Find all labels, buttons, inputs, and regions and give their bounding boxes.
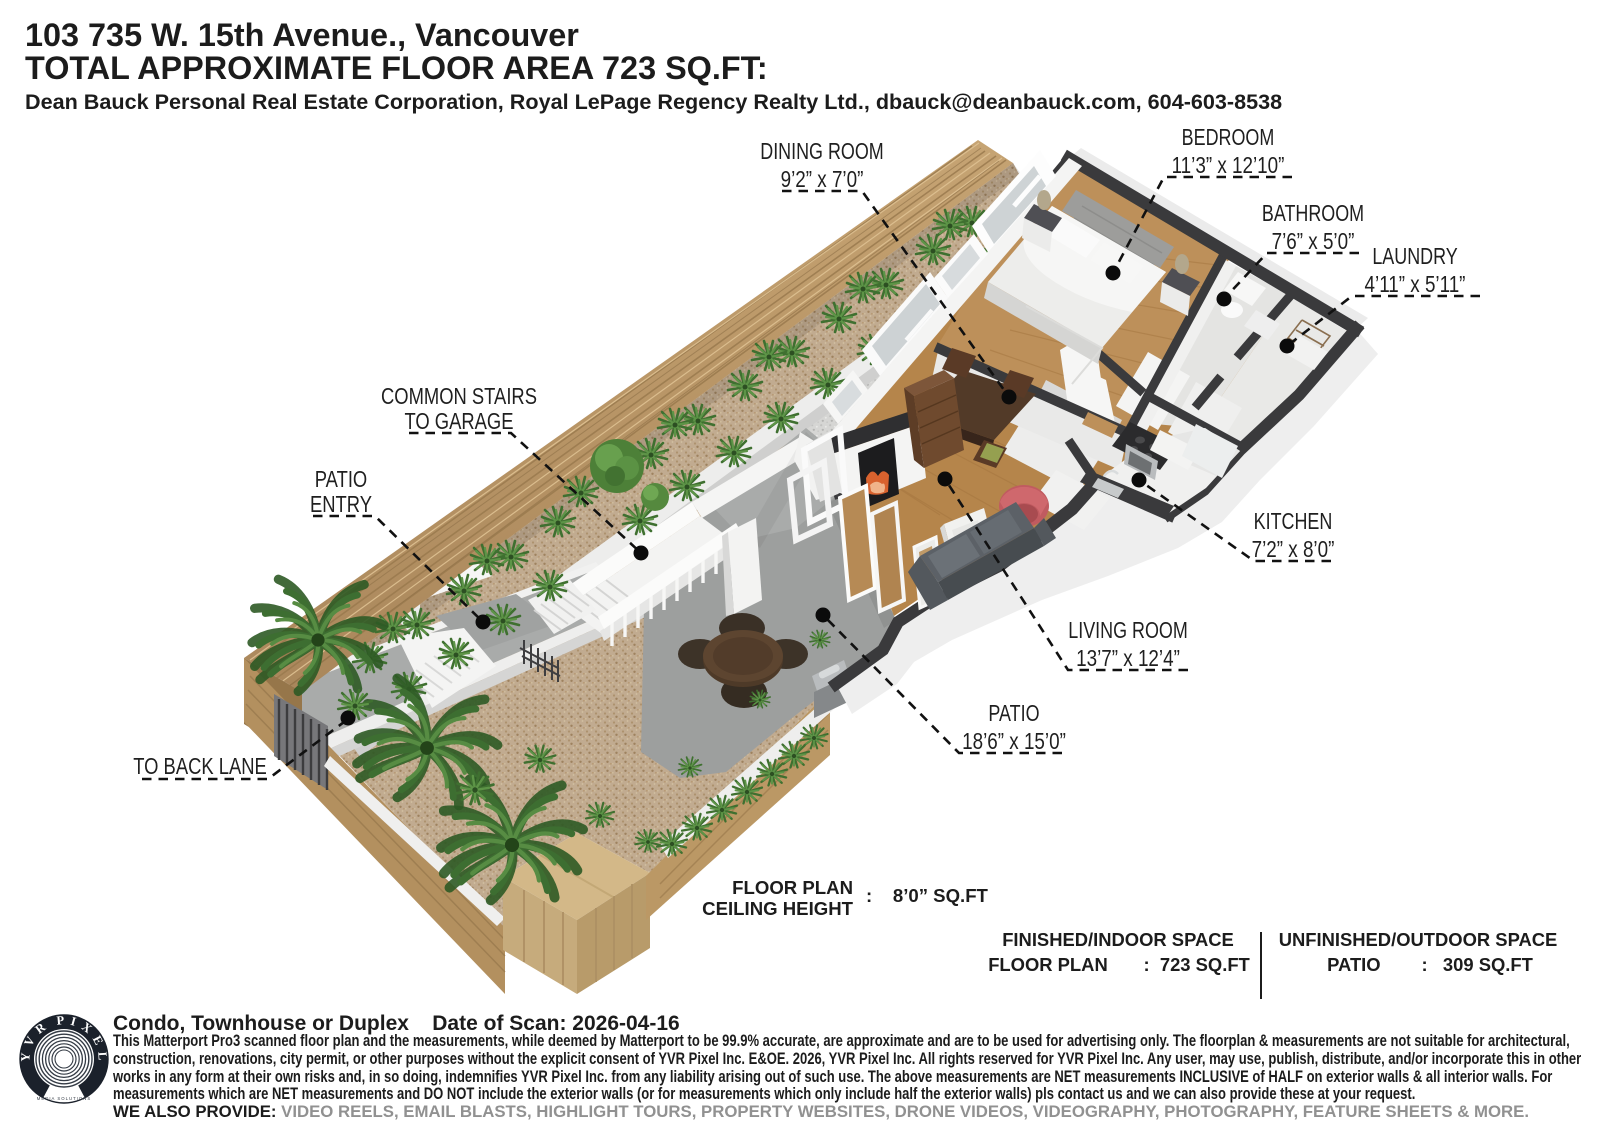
svg-text:TO BACK LANE: TO BACK LANE	[133, 754, 267, 779]
svg-text:KITCHEN: KITCHEN	[1254, 509, 1333, 535]
svg-text:MEDIA SOLUTIONS: MEDIA SOLUTIONS	[37, 1096, 91, 1101]
svg-text:4’11” x 5’11”: 4’11” x 5’11”	[1365, 272, 1466, 297]
svg-text:DINING ROOM: DINING ROOM	[760, 139, 883, 165]
svg-text:TO GARAGE: TO GARAGE	[405, 409, 514, 434]
svg-text:7’2” x 8’0”: 7’2” x 8’0”	[1252, 537, 1335, 562]
svg-text:BATHROOM: BATHROOM	[1262, 201, 1364, 227]
svg-text:BEDROOM: BEDROOM	[1182, 125, 1275, 151]
svg-text:7’6” x 5’0”: 7’6” x 5’0”	[1272, 229, 1355, 254]
svg-text:11’3” x 12’10”: 11’3” x 12’10”	[1172, 153, 1285, 178]
svg-text:ENTRY: ENTRY	[310, 492, 372, 517]
svg-text:LAUNDRY: LAUNDRY	[1372, 244, 1458, 270]
svg-text:LIVING ROOM: LIVING ROOM	[1068, 618, 1188, 644]
svg-text:13’7” x 12’4”: 13’7” x 12’4”	[1076, 646, 1180, 671]
svg-text:PATIO: PATIO	[988, 701, 1039, 727]
svg-text:COMMON STAIRS: COMMON STAIRS	[381, 384, 537, 409]
svg-text:18’6” x 15’0”: 18’6” x 15’0”	[962, 729, 1066, 754]
svg-text:9’2” x 7’0”: 9’2” x 7’0”	[781, 167, 864, 192]
svg-text:PATIO: PATIO	[315, 467, 367, 492]
